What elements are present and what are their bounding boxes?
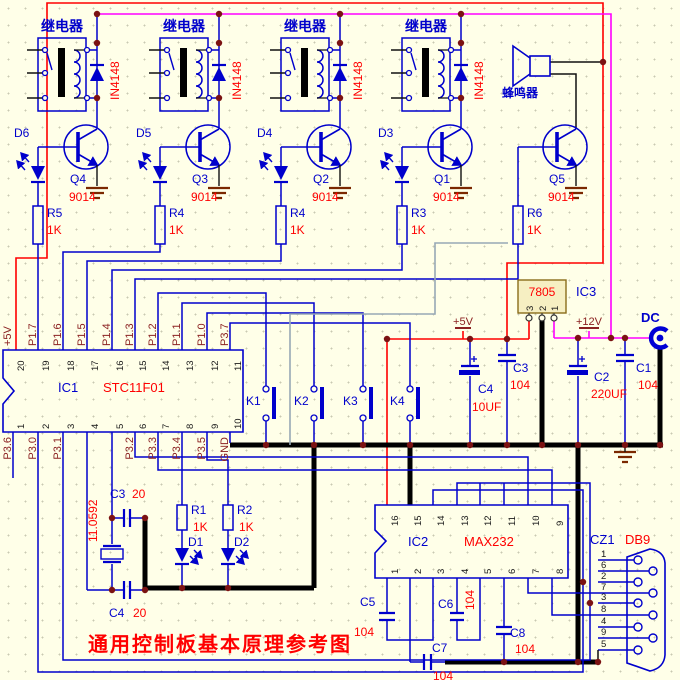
junction-dot xyxy=(216,95,222,101)
buzzer-symbol xyxy=(513,46,550,86)
led-ray xyxy=(190,556,198,564)
label-drivers-resistors-3-value: 1K xyxy=(411,223,426,237)
relay-contact xyxy=(165,96,170,101)
label-serial-capacitors-3-ref: C8 xyxy=(510,626,526,640)
junction-dot xyxy=(216,11,222,17)
label-ic1-bottom_pins-1-label: P3.0 xyxy=(27,437,39,460)
led-icon xyxy=(31,166,45,180)
label-power-regulator-pins-0: 3 xyxy=(525,306,536,311)
c2-polar-plate xyxy=(567,370,588,375)
led-ray xyxy=(385,153,393,162)
junction-dot xyxy=(337,40,343,46)
transistor-emitter xyxy=(321,154,340,165)
junction-dot xyxy=(657,442,663,448)
label-serial-capacitors-2-ref: C7 xyxy=(432,641,448,655)
label-power-rails-v12: +12V xyxy=(576,316,603,328)
led-ray xyxy=(236,556,244,564)
relay-contact xyxy=(286,96,291,101)
resistor-body xyxy=(513,206,523,244)
label-ic1-bottom_pins-3-num: 4 xyxy=(90,424,101,429)
label-ic1-top_pins-4-num: 16 xyxy=(115,360,126,371)
label-oscillator-caps-0-ref: C3 xyxy=(110,487,126,501)
label-ic1-top_pins-0-num: 20 xyxy=(16,360,27,371)
button-terminal xyxy=(263,415,269,421)
flyback-diode-icon xyxy=(333,67,347,81)
label-drivers-transistors-1-part: 9014 xyxy=(191,190,218,204)
label-serial-ic2-top_pins-6: 10 xyxy=(531,515,542,526)
relay-pin xyxy=(207,96,212,101)
junction-dot xyxy=(94,11,100,17)
label-ic1-top_pins-6-num: 14 xyxy=(161,360,172,371)
label-buttons-3: K4 xyxy=(390,394,405,408)
label-power-capacitors-1-value: 104 xyxy=(510,378,530,392)
label-ic1-top_pins-8-num: 12 xyxy=(210,360,221,371)
label-ic1-bottom_pins-0-label: P3.6 xyxy=(2,437,14,460)
label-serial-capacitors-1-ref: C6 xyxy=(438,597,454,611)
relay-contact-arm xyxy=(169,53,174,70)
label-oscillator-crystal: 11.0592 xyxy=(86,499,100,542)
label-indicators-leds-1: D2 xyxy=(234,535,250,549)
label-power-regulator-pins-2: 1 xyxy=(550,306,561,311)
led-ray xyxy=(260,161,268,170)
label-ic1-bottom_pins-8-label: P3.5 xyxy=(196,437,208,460)
label-drivers-leds-0: D6 xyxy=(14,126,30,140)
led-icon xyxy=(395,166,409,180)
wire-ground-bus xyxy=(145,318,663,662)
label-serial-ic2-bottom_pins-4: 5 xyxy=(483,569,494,574)
junction-dot xyxy=(407,442,413,448)
junction-dot xyxy=(225,585,231,591)
label-ic1-bottom_pins-7-num: 8 xyxy=(185,424,196,429)
relay-contact-stubs xyxy=(149,50,164,98)
label-ic1-part: STC11F01 xyxy=(103,380,165,395)
label-drivers-leds-2: D4 xyxy=(257,126,273,140)
label-ic1-bottom_pins-7-label: P3.4 xyxy=(171,437,183,460)
label-ic1-top_pins-9-num: 11 xyxy=(233,361,244,371)
label-ic1-top_pins-1-num: 19 xyxy=(41,360,52,371)
button-actuator xyxy=(320,387,324,419)
junction-dot xyxy=(458,95,464,101)
schematic-canvas: 继电器继电器继电器继电器IN4148IN4148IN4148IN4148蜂鸣器D… xyxy=(0,0,680,680)
label-serial-ic2-bottom_pins-1: 2 xyxy=(413,569,424,574)
c4-polar-plate xyxy=(459,370,480,375)
relay-coil-winding xyxy=(74,50,80,98)
button-actuator xyxy=(369,387,373,419)
relay-contact xyxy=(43,71,48,76)
flyback-diode-icon xyxy=(212,67,226,81)
label-serial-capacitors-3-value: 104 xyxy=(515,642,535,656)
junction-dot xyxy=(94,95,100,101)
label-serial-connector-part: DB9 xyxy=(625,532,650,547)
ic3-pin-circles xyxy=(526,315,557,321)
label-ic1-bottom_pins-4-num: 5 xyxy=(115,424,126,429)
transistor-emitter xyxy=(78,154,97,165)
label-serial-ic2-top_pins-2: 14 xyxy=(436,515,447,526)
relay-coil-core xyxy=(422,48,429,97)
transistor-collector xyxy=(200,129,219,140)
label-drivers-resistors-3-ref: R3 xyxy=(411,206,427,220)
label-ic1-bottom_pins-2-label: P3.1 xyxy=(52,437,64,460)
button-terminal xyxy=(360,386,366,392)
relay-contact xyxy=(43,48,48,53)
label-drivers-transistors-2-part: 9014 xyxy=(312,190,339,204)
label-serial-ic2-top_pins-7: 9 xyxy=(555,521,566,526)
label-serial-ic2-ref: IC2 xyxy=(408,534,428,549)
label-drivers-transistors-3-part: 9014 xyxy=(433,190,460,204)
label-drivers-transistors-0-ref: Q4 xyxy=(70,172,86,186)
relay-contact-stubs xyxy=(391,50,406,98)
label-serial-ic2-top_pins-4: 12 xyxy=(483,515,494,526)
label-ic1-bottom_pins-9-label: GND xyxy=(219,437,231,462)
label-ic1-bottom_pins-9-num: 10 xyxy=(233,418,244,429)
resistor-body xyxy=(177,505,187,530)
relay-pin xyxy=(328,48,333,53)
relay-coil-core xyxy=(301,48,308,97)
label-ic1-top_pins-1-label: P1.7 xyxy=(27,323,39,346)
label-oscillator-caps-1-ref: C4 xyxy=(109,606,125,620)
relay-contact-arm xyxy=(411,53,416,70)
relay-coil-core xyxy=(58,48,65,97)
label-serial-capacitors-2-value: 104 xyxy=(433,669,453,680)
relay-contact-arm xyxy=(290,53,295,70)
label-oscillator-caps-0-value: 20 xyxy=(132,487,146,501)
label-power-regulator-ref: IC3 xyxy=(576,284,596,299)
transistor-collector xyxy=(321,129,340,140)
label-serial-ic2-bottom_pins-5: 6 xyxy=(507,569,518,574)
junction-dot xyxy=(622,442,628,448)
transistor-collector xyxy=(557,129,576,140)
label-relays-label: 继电器 xyxy=(284,18,327,34)
junction-dot xyxy=(595,659,601,665)
label-ic1-bottom_pins-5-num: 6 xyxy=(138,424,149,429)
label-buttons-1: K2 xyxy=(294,394,309,408)
junction-dot xyxy=(384,336,390,342)
junction-dot xyxy=(142,515,148,521)
label-drivers-transistors-1-ref: Q3 xyxy=(192,172,208,186)
relay-coil-winding xyxy=(317,50,323,98)
label-relays-label: 继电器 xyxy=(41,18,84,34)
label-power-rails-dc: DC xyxy=(641,310,660,325)
junction-dot xyxy=(467,336,473,342)
label-ic1-top_pins-3-num: 17 xyxy=(90,360,101,371)
relay-contact xyxy=(407,96,412,101)
label-power-capacitors-0-ref: C4 xyxy=(478,382,494,396)
led-ray xyxy=(194,550,202,558)
label-ic1-top_pins-7-num: 13 xyxy=(185,360,196,371)
label-ic1-top_pins-4-label: P1.4 xyxy=(101,323,113,346)
label-ic1-bottom_pins-2-num: 3 xyxy=(66,424,77,429)
label-ic1-top_pins-2-label: P1.6 xyxy=(52,323,64,346)
transistor-emitter xyxy=(200,154,219,165)
label-relays-label: 继电器 xyxy=(405,18,448,34)
button-actuator xyxy=(416,387,420,419)
relay-coil-winding xyxy=(438,50,444,98)
button-actuator xyxy=(272,387,276,419)
junction-dot xyxy=(504,336,510,342)
crystal-symbol xyxy=(101,546,123,562)
label-relays-diode: IN4148 xyxy=(108,61,122,100)
junction-dot xyxy=(337,11,343,17)
junction-dot xyxy=(216,40,222,46)
label-buttons-0: K1 xyxy=(246,394,261,408)
label-serial-capacitors-0-value: 104 xyxy=(354,625,374,639)
label-relays-label: 继电器 xyxy=(163,18,206,34)
label-serial-connector-pins-4: 3 xyxy=(601,592,606,603)
led-ray xyxy=(139,161,147,170)
button-terminal xyxy=(360,415,366,421)
transistor-emitter xyxy=(557,154,576,165)
junction-dot xyxy=(337,95,343,101)
junction-dot xyxy=(575,335,581,341)
led-ray xyxy=(17,161,25,170)
relay-pin xyxy=(449,96,454,101)
label-drivers-transistors-2-ref: Q2 xyxy=(313,172,329,186)
relay-contact-stubs xyxy=(27,50,42,98)
label-drivers-transistors-0-part: 9014 xyxy=(69,190,96,204)
junction-dot xyxy=(142,587,148,593)
label-power-capacitors-2-ref: C2 xyxy=(594,370,610,384)
label-ic1-top_pins-9-label: P3.7 xyxy=(219,323,231,346)
label-power-regulator-part: 7805 xyxy=(529,285,556,299)
label-serial-ic2-part: MAX232 xyxy=(464,534,514,549)
relay-pin xyxy=(328,96,333,101)
junction-dot xyxy=(179,585,185,591)
relay-contact xyxy=(407,71,412,76)
resistor-body xyxy=(223,505,233,530)
label-drivers-resistors-0-ref: R5 xyxy=(47,206,63,220)
label-power-regulator-pins-1: 2 xyxy=(538,306,549,311)
label-drivers-leds-3: D3 xyxy=(378,126,394,140)
led-ray xyxy=(143,153,151,162)
flyback-diode-icon xyxy=(454,67,468,81)
label-serial-capacitors-1-value: 104 xyxy=(463,590,477,610)
label-ic1-bottom_pins-6-num: 7 xyxy=(161,424,172,429)
junction-dot xyxy=(311,442,317,448)
label-power-capacitors-3-ref: C1 xyxy=(636,361,652,375)
junction-dot xyxy=(458,40,464,46)
label-ic1-bottom_pins-6-label: P3.3 xyxy=(147,437,159,460)
junction-dot xyxy=(109,515,115,521)
label-serial-ic2-bottom_pins-3: 4 xyxy=(460,569,471,574)
label-ic1-top_pins-8-label: P1.0 xyxy=(196,323,208,346)
label-serial-ic2-top_pins-3: 13 xyxy=(460,515,471,526)
label-ic1-bottom_pins-5-label: P3.2 xyxy=(124,437,136,460)
relay-contact xyxy=(165,71,170,76)
junction-dot xyxy=(501,659,507,665)
label-serial-ic2-top_pins-1: 15 xyxy=(413,515,424,526)
label-drivers-resistors-2-value: 1K xyxy=(290,223,305,237)
label-serial-connector-pins-0: 1 xyxy=(601,549,606,560)
label-serial-connector-pins-5: 8 xyxy=(601,604,606,615)
label-ic1-top_pins-5-label: P1.3 xyxy=(124,323,136,346)
label-power-capacitors-0-value: 10UF xyxy=(472,400,501,414)
button-terminal xyxy=(311,415,317,421)
label-ic1-top_pins-0-label: +5V xyxy=(2,325,14,346)
led-icon xyxy=(175,548,189,562)
label-power-capacitors-1-ref: C3 xyxy=(513,361,529,375)
junction-dot xyxy=(458,11,464,17)
label-serial-ic2-top_pins-5: 11 xyxy=(507,516,518,526)
label-ic1-bottom_pins-0-num: 1 xyxy=(16,424,27,429)
label-serial-connector-pins-6: 4 xyxy=(601,616,606,627)
label-ic1-top_pins-5-num: 15 xyxy=(138,360,149,371)
relay-contact-stubs xyxy=(270,50,285,98)
label-power-rails-v5: +5V xyxy=(453,316,474,328)
led-icon xyxy=(274,166,288,180)
junction-dot xyxy=(600,59,606,65)
flyback-diode-icon xyxy=(90,67,104,81)
label-serial-ic2-bottom_pins-2: 3 xyxy=(436,569,447,574)
label-indicators-resistors-1-value: 1K xyxy=(239,520,254,534)
label-power-capacitors-2-value: 220UF xyxy=(591,387,627,401)
label-ic1-bottom_pins-1-num: 2 xyxy=(41,424,52,429)
label-drivers-transistors-4-part: 9014 xyxy=(548,190,575,204)
label-indicators-resistors-0-value: 1K xyxy=(193,520,208,534)
wire-5v-red-net xyxy=(16,3,603,505)
led-ray xyxy=(21,153,29,162)
transistor-emitter xyxy=(442,154,461,165)
label-ic1-top_pins-2-num: 18 xyxy=(66,360,77,371)
transistor-collector xyxy=(78,129,97,140)
ground-icon xyxy=(614,452,636,462)
label-drivers-leds-1: D5 xyxy=(136,126,152,140)
label-serial-connector-pins-1: 6 xyxy=(601,560,606,571)
label-serial-ic2-bottom_pins-6: 7 xyxy=(531,569,542,574)
label-drivers-transistors-4-ref: Q5 xyxy=(549,172,565,186)
label-ic1-top_pins-3-label: P1.5 xyxy=(76,323,88,346)
label-relays-diode: IN4148 xyxy=(351,61,365,100)
label-serial-connector-pins-7: 9 xyxy=(601,627,606,638)
label-serial-ic2-top_pins-0: 16 xyxy=(390,515,401,526)
led-icon xyxy=(153,166,167,180)
relay-contact xyxy=(407,48,412,53)
label-ic1-top_pins-6-label: P1.2 xyxy=(147,323,159,346)
junction-dot xyxy=(608,335,614,341)
label-serial-connector-pins-8: 5 xyxy=(601,639,606,650)
label-drivers-resistors-1-value: 1K xyxy=(169,223,184,237)
button-terminal xyxy=(407,386,413,392)
label-drivers-resistors-2-ref: R4 xyxy=(290,206,306,220)
label-drivers-transistors-3-ref: Q1 xyxy=(434,172,450,186)
label-drivers-resistors-4-ref: R6 xyxy=(527,206,543,220)
junction-dot xyxy=(580,579,586,585)
relay-coil-winding xyxy=(196,50,202,98)
label-oscillator-caps-1-value: 20 xyxy=(133,606,147,620)
relay-pin xyxy=(85,96,90,101)
label-indicators-resistors-1-ref: R2 xyxy=(237,503,253,517)
junction-dot xyxy=(360,442,366,448)
led-ray xyxy=(264,153,272,162)
junction-dot xyxy=(504,442,510,448)
junction-dot xyxy=(109,587,115,593)
dc-jack xyxy=(651,329,667,348)
label-title: 通用控制板基本原理参考图 xyxy=(88,632,352,656)
db9-shell xyxy=(627,549,665,671)
relay-contact xyxy=(286,48,291,53)
led-ray xyxy=(240,550,248,558)
junction-dot xyxy=(575,442,581,448)
label-serial-connector-ref: CZ1 xyxy=(590,532,615,547)
label-relays-diode: IN4148 xyxy=(472,61,486,100)
junction-dot xyxy=(539,442,545,448)
label-serial-ic2-bottom_pins-7: 8 xyxy=(555,569,566,574)
label-ic1-ref: IC1 xyxy=(58,380,78,395)
led-ray xyxy=(381,161,389,170)
led-icon xyxy=(221,548,235,562)
transistor-collector xyxy=(442,129,461,140)
label-ic1-top_pins-7-label: P1.1 xyxy=(171,323,183,346)
junction-dot xyxy=(622,335,628,341)
label-indicators-leds-0: D1 xyxy=(188,535,204,549)
relay-pin xyxy=(207,48,212,53)
junction-dot xyxy=(94,40,100,46)
resistor-body xyxy=(397,206,407,244)
button-terminal xyxy=(263,386,269,392)
label-buttons-2: K3 xyxy=(343,394,358,408)
junction-dot xyxy=(263,442,269,448)
relay-pin xyxy=(449,48,454,53)
button-terminal xyxy=(407,415,413,421)
relay-contact xyxy=(165,48,170,53)
label-ic1-bottom_pins-8-num: 9 xyxy=(210,424,221,429)
label-relays-diode: IN4148 xyxy=(230,61,244,100)
relay-contact xyxy=(286,71,291,76)
label-drivers-resistors-0-value: 1K xyxy=(47,223,62,237)
resistor-body xyxy=(33,206,43,244)
label-serial-ic2-bottom_pins-0: 1 xyxy=(390,569,401,574)
label-drivers-resistors-4-value: 1K xyxy=(527,223,542,237)
relay-coil-core xyxy=(180,48,187,97)
resistor-body xyxy=(155,206,165,244)
label-serial-connector-pins-2: 2 xyxy=(601,571,606,582)
junction-dot xyxy=(587,600,593,606)
relay-pin xyxy=(85,48,90,53)
junction-dot xyxy=(575,659,581,665)
label-power-capacitors-3-value: 104 xyxy=(638,378,658,392)
label-buzzer-label: 蜂鸣器 xyxy=(502,85,539,100)
label-drivers-resistors-1-ref: R4 xyxy=(169,206,185,220)
junction-dot xyxy=(467,442,473,448)
button-terminal xyxy=(311,386,317,392)
relay-contact xyxy=(43,96,48,101)
label-indicators-resistors-0-ref: R1 xyxy=(191,503,207,517)
label-serial-capacitors-0-ref: C5 xyxy=(360,595,376,609)
resistor-body xyxy=(276,206,286,244)
